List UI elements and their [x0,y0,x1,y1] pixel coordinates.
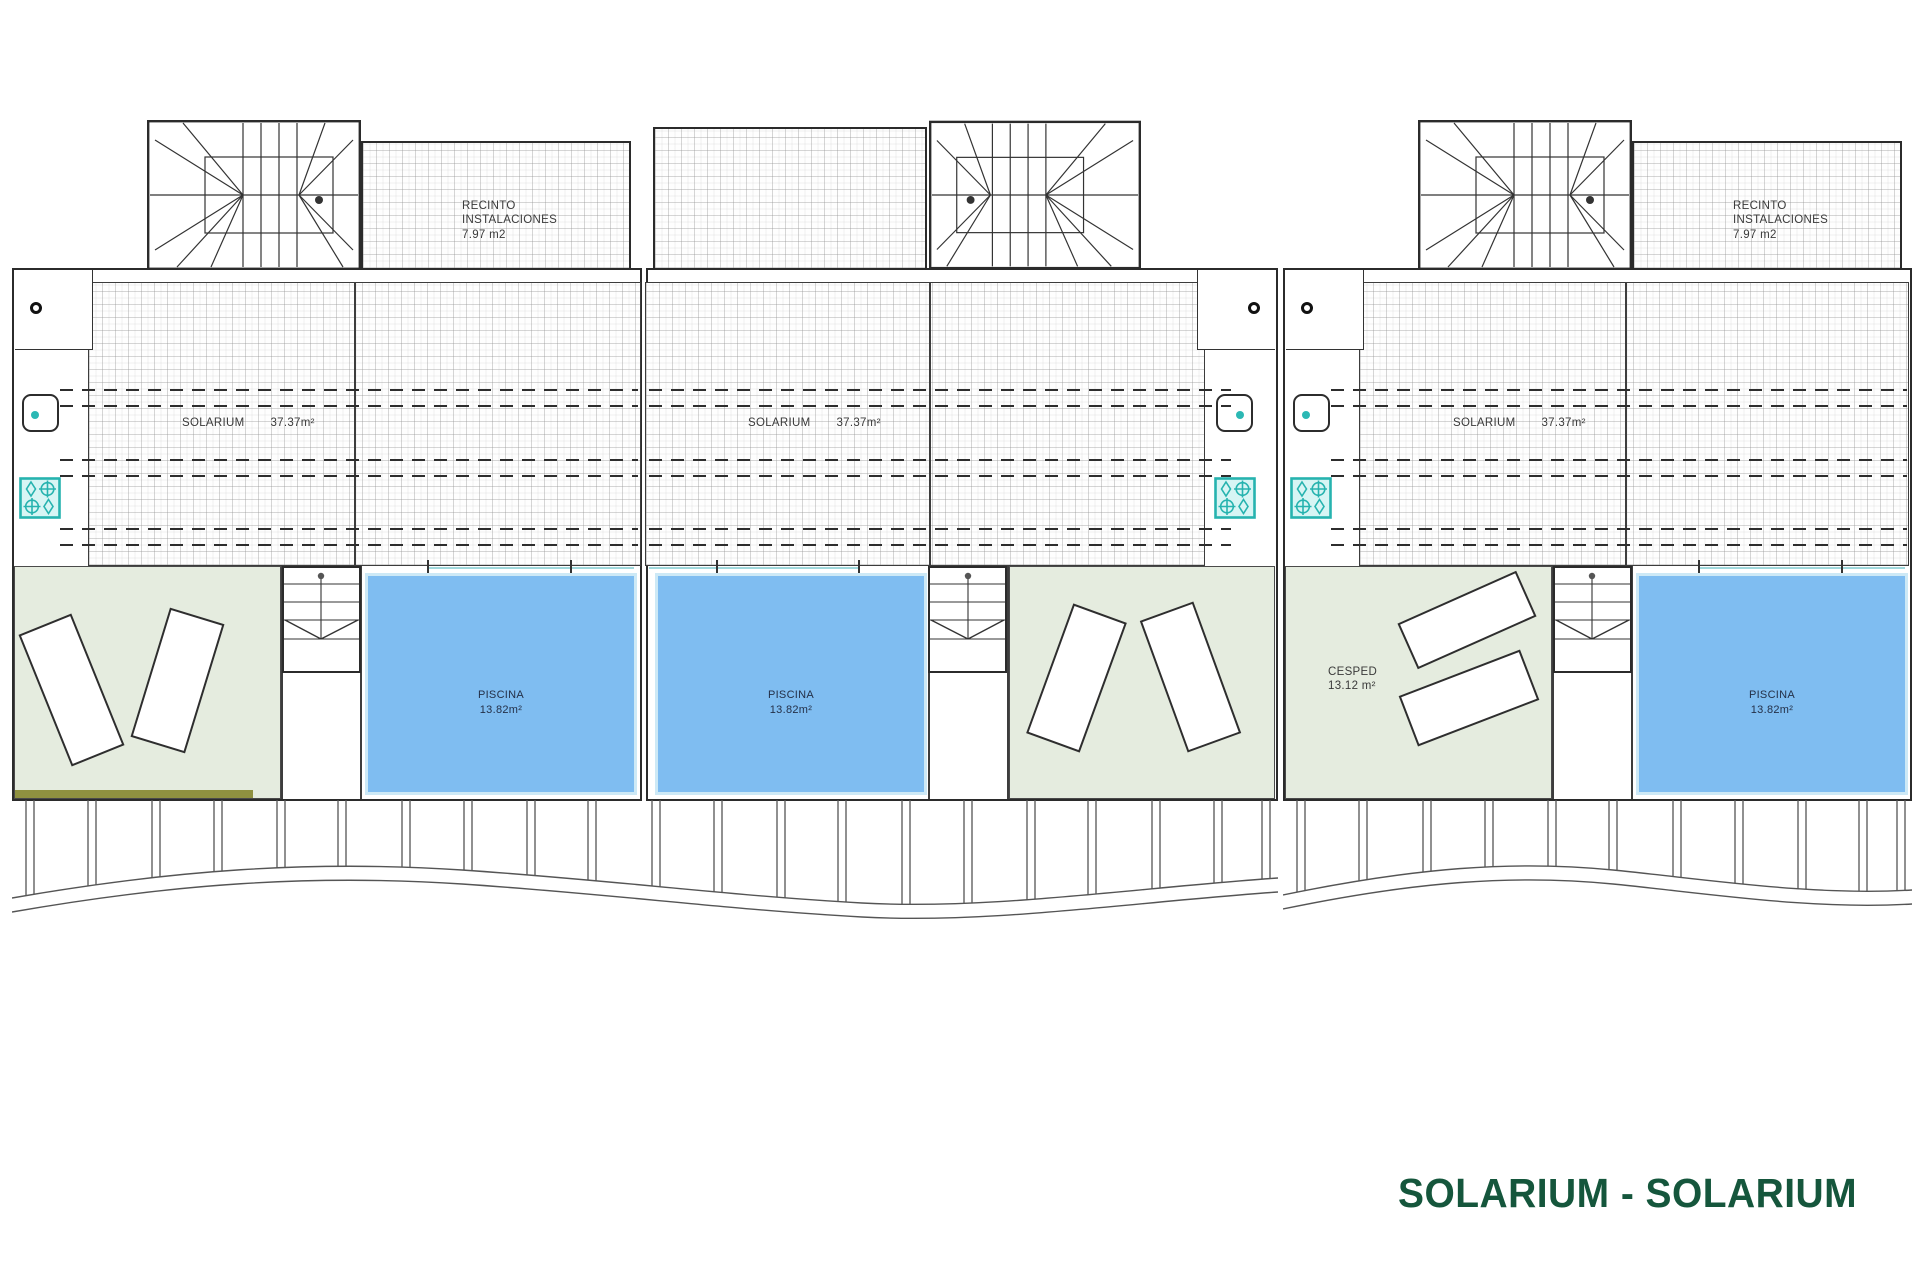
wall [1625,282,1627,566]
survey-tick [716,560,718,573]
recinto-line1: RECINTO [1733,199,1828,213]
hob-icon [1213,476,1257,520]
pergola-dashed-line [60,544,638,546]
lawn-name: CESPED [1328,665,1377,679]
pool-area: 13.82m² [741,703,841,718]
pergola-dashed-line [60,405,638,407]
pool-area: 13.82m² [451,703,551,718]
unit-2-store-box [1197,270,1275,350]
tap-dot-icon [31,411,39,419]
pergola-dashed-line [1331,405,1907,407]
unit-3-store-box [1286,270,1364,350]
unit-3-pool-label: PISCINA 13.82m² [1722,688,1822,718]
unit-3-pool [1636,573,1908,795]
unit-1-recinto-label: RECINTO INSTALACIONES 7.97 m2 [462,199,557,242]
solarium-name: SOLARIUM [182,417,244,429]
pergola-dashed-line [1331,528,1907,530]
unit-2-pool-label: PISCINA 13.82m² [741,688,841,718]
sun-lounger [18,613,124,766]
unit-1-store-box [15,270,93,350]
survey-tick [427,560,429,573]
unit-2-roof-room [653,127,927,270]
sink-icon [22,394,59,432]
unit-2-solarium-label: SOLARIUM 37.37m² [748,417,881,429]
stairwell-plan-icon [147,120,361,270]
pergola-dashed-line [649,475,1231,477]
survey-tick [570,560,572,573]
sink-icon [1293,394,1330,432]
pergola-dashed-line [60,389,638,391]
recinto-line1: RECINTO [462,199,557,213]
hob-icon [1289,476,1333,520]
survey-tick [1698,560,1700,573]
round-fixture-icon [30,302,42,314]
hedge-strip [15,790,253,798]
unit-3-lawn-label: CESPED 13.12 m² [1328,665,1377,694]
recinto-line3: 7.97 m2 [462,228,557,242]
sink-icon [1216,394,1253,432]
tap-dot-icon [1236,411,1244,419]
unit-1-solarium-label: SOLARIUM 37.37m² [182,417,315,429]
plan-title: SOLARIUM - SOLARIUM [1398,1170,1857,1217]
pergola-dashed-line [649,389,1231,391]
pool-stair-icon [928,566,1007,673]
floor-plan-canvas: RECINTO INSTALACIONES 7.97 m2 RECINTO IN… [0,0,1920,1280]
pergola-dashed-line [649,528,1231,530]
pergola-dashed-line [649,459,1231,461]
pergola-dashed-line [649,405,1231,407]
pool-stair-icon [1553,566,1632,673]
pool-waterline [1699,567,1905,569]
solarium-area: 37.37m² [270,417,314,429]
recinto-line3: 7.97 m2 [1733,228,1828,242]
wall [354,282,356,566]
fence-terrain-band [1283,800,1912,925]
unit-3-solarium-floor [1359,282,1909,566]
unit-3-recinto-label: RECINTO INSTALACIONES 7.97 m2 [1733,199,1828,242]
unit-3-lawn: CESPED 13.12 m² [1285,566,1552,799]
lawn-area: 13.12 m² [1328,679,1377,693]
pergola-dashed-line [649,544,1231,546]
sun-lounger [1026,603,1127,752]
unit-3-solarium-label: SOLARIUM 37.37m² [1453,417,1586,429]
unit-2-pool [655,573,927,795]
survey-tick [1841,560,1843,573]
pergola-dashed-line [60,475,638,477]
unit-2-lawn [1009,566,1275,799]
fence-terrain-band [12,800,1278,925]
pergola-dashed-line [1331,475,1907,477]
recinto-line2: INSTALACIONES [462,213,557,227]
pergola-dashed-line [1331,389,1907,391]
solarium-area: 37.37m² [836,417,880,429]
tap-dot-icon [1302,411,1310,419]
unit-1-solarium-floor [88,282,641,566]
pool-area: 13.82m² [1722,703,1822,718]
pergola-dashed-line [1331,459,1907,461]
stairwell-plan-icon [929,120,1141,270]
pergola-dashed-line [1331,544,1907,546]
round-fixture-icon [1248,302,1260,314]
pool-name: PISCINA [451,688,551,703]
pool-waterline [649,567,858,569]
recinto-line2: INSTALACIONES [1733,213,1828,227]
unit-2-solarium-floor [645,282,1205,566]
pool-name: PISCINA [1722,688,1822,703]
wall [929,282,931,566]
unit-1-lawn [14,566,281,799]
unit-1-pool-label: PISCINA 13.82m² [451,688,551,718]
solarium-name: SOLARIUM [1453,417,1515,429]
sun-lounger [1139,601,1240,752]
pergola-dashed-line [60,528,638,530]
pool-waterline [428,567,634,569]
stairwell-plan-icon [1418,120,1632,270]
survey-tick [858,560,860,573]
unit-1-pool [365,573,637,795]
solarium-name: SOLARIUM [748,417,810,429]
round-fixture-icon [1301,302,1313,314]
pool-stair-icon [282,566,361,673]
pool-name: PISCINA [741,688,841,703]
sun-lounger [131,608,225,754]
solarium-area: 37.37m² [1541,417,1585,429]
pergola-dashed-line [60,459,638,461]
hob-icon [18,476,62,520]
